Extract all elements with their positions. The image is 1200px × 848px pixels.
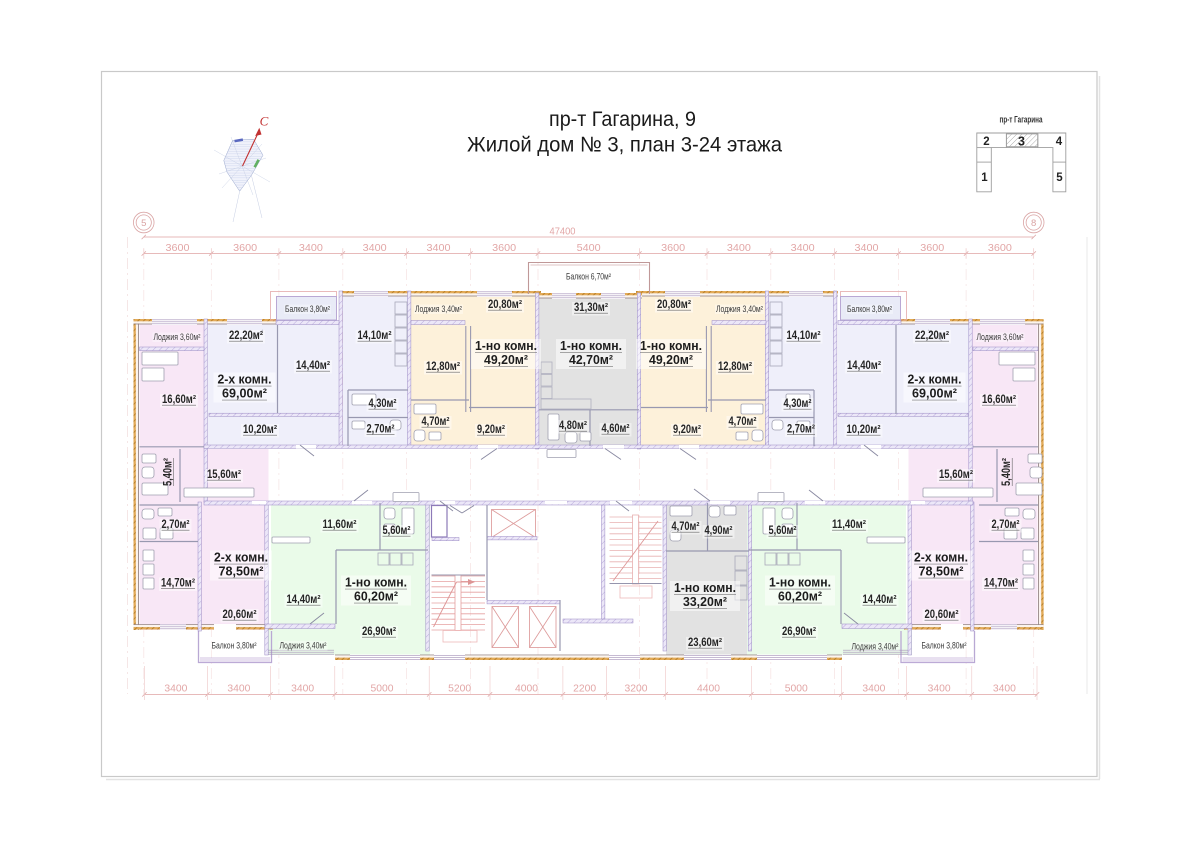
svg-text:пр-т Гагарина, 9: пр-т Гагарина, 9 [549,107,696,131]
svg-text:4,70м²: 4,70м² [729,416,757,428]
svg-text:14,70м²: 14,70м² [161,578,195,590]
svg-text:9,20м²: 9,20м² [673,424,701,436]
svg-text:5,40м²: 5,40м² [1001,458,1013,486]
svg-text:3400: 3400 [227,683,250,695]
svg-text:2200: 2200 [573,683,596,695]
svg-text:20,80м²: 20,80м² [488,299,522,311]
svg-text:4,30м²: 4,30м² [369,398,397,410]
svg-text:Балкон 3,80м²: Балкон 3,80м² [285,304,330,314]
svg-text:Балкон 6,70м²: Балкон 6,70м² [566,272,611,282]
svg-text:60,20м²: 60,20м² [354,589,399,604]
svg-text:11,40м²: 11,40м² [832,519,866,531]
svg-text:20,60м²: 20,60м² [223,609,257,621]
svg-text:9,20м²: 9,20м² [477,424,505,436]
svg-text:C: C [260,114,269,129]
svg-text:1: 1 [981,172,988,184]
svg-text:2,70м²: 2,70м² [367,424,395,436]
svg-text:69,00м²: 69,00м² [912,386,958,401]
svg-text:26,90м²: 26,90м² [782,626,816,638]
svg-text:пр-т Гагарина: пр-т Гагарина [1000,115,1043,125]
svg-text:42,70м²: 42,70м² [569,352,614,367]
svg-text:22,20м²: 22,20м² [915,330,949,342]
svg-text:14,10м²: 14,10м² [358,330,392,342]
svg-text:3400: 3400 [363,242,387,254]
svg-text:5,60м²: 5,60м² [383,525,411,537]
svg-text:10,20м²: 10,20м² [243,424,277,436]
svg-text:3600: 3600 [492,242,516,254]
svg-text:4000: 4000 [515,683,538,695]
svg-text:4: 4 [1056,136,1063,148]
svg-text:Балкон 3,80м²: Балкон 3,80м² [922,641,967,651]
svg-text:2,70м²: 2,70м² [992,519,1020,531]
svg-text:3600: 3600 [988,242,1012,254]
svg-text:78,50м²: 78,50м² [919,564,965,579]
svg-text:Лоджия 3,60м²: Лоджия 3,60м² [154,332,201,342]
svg-text:Лоджия 3,40м²: Лоджия 3,40м² [852,642,899,652]
svg-text:2-х комн.: 2-х комн. [214,550,268,565]
svg-text:14,40м²: 14,40м² [847,360,881,372]
svg-text:14,40м²: 14,40м² [863,594,897,606]
svg-text:11,60м²: 11,60м² [323,519,357,531]
svg-text:49,20м²: 49,20м² [649,352,694,367]
svg-text:3400: 3400 [791,242,815,254]
svg-text:20,80м²: 20,80м² [657,299,691,311]
svg-text:14,40м²: 14,40м² [296,360,330,372]
svg-text:3600: 3600 [166,242,190,254]
svg-text:Балкон 3,80м²: Балкон 3,80м² [212,641,257,651]
svg-text:4,80м²: 4,80м² [559,420,587,432]
svg-text:3400: 3400 [427,242,451,254]
svg-text:16,60м²: 16,60м² [982,394,1016,406]
svg-text:2-х комн.: 2-х комн. [218,372,272,387]
svg-text:3400: 3400 [928,683,951,695]
svg-text:4,70м²: 4,70м² [422,416,450,428]
svg-text:3400: 3400 [164,683,187,695]
svg-text:10,20м²: 10,20м² [847,424,881,436]
svg-text:2: 2 [983,136,989,148]
svg-text:4,60м²: 4,60м² [602,423,630,435]
svg-text:Лоджия 3,40м²: Лоджия 3,40м² [716,304,763,314]
svg-text:3400: 3400 [862,683,885,695]
svg-text:33,20м²: 33,20м² [683,594,728,609]
svg-text:3400: 3400 [299,242,323,254]
svg-text:1-но комн.: 1-но комн. [560,338,622,353]
svg-text:4400: 4400 [697,683,720,695]
svg-text:47400: 47400 [550,226,576,238]
svg-text:16,60м²: 16,60м² [162,394,196,406]
svg-text:3: 3 [1018,134,1025,148]
svg-text:3400: 3400 [855,242,879,254]
svg-text:14,70м²: 14,70м² [984,578,1018,590]
svg-text:15,60м²: 15,60м² [207,469,241,481]
svg-text:31,30м²: 31,30м² [574,302,608,314]
svg-text:5400: 5400 [577,242,601,254]
svg-text:4,90м²: 4,90м² [705,525,733,537]
svg-text:5,40м²: 5,40м² [163,458,175,486]
svg-text:5000: 5000 [371,683,394,695]
svg-text:14,40м²: 14,40м² [287,594,321,606]
svg-text:2,70м²: 2,70м² [787,424,815,436]
svg-text:49,20м²: 49,20м² [484,352,529,367]
svg-text:1-но комн.: 1-но комн. [345,575,407,590]
svg-text:5,60м²: 5,60м² [769,525,797,537]
svg-text:26,90м²: 26,90м² [362,626,396,638]
svg-text:Жилой дом № 3, план 3-24 этажа: Жилой дом № 3, план 3-24 этажа [467,133,782,157]
svg-text:12,80м²: 12,80м² [426,361,460,373]
svg-text:3400: 3400 [993,683,1016,695]
svg-text:20,60м²: 20,60м² [925,609,959,621]
svg-text:5: 5 [141,218,146,229]
svg-text:3200: 3200 [625,683,648,695]
svg-text:1-но комн.: 1-но комн. [475,338,537,353]
svg-text:1-но комн.: 1-но комн. [674,580,736,595]
svg-text:3400: 3400 [727,242,751,254]
svg-text:Лоджия 3,60м²: Лоджия 3,60м² [977,332,1024,342]
svg-text:78,50м²: 78,50м² [219,564,265,579]
svg-text:22,20м²: 22,20м² [229,330,263,342]
svg-text:Лоджия 3,40м²: Лоджия 3,40м² [280,641,327,651]
svg-text:8: 8 [1031,218,1036,229]
svg-text:23,60м²: 23,60м² [688,637,722,649]
svg-text:3600: 3600 [233,242,257,254]
svg-text:12,80м²: 12,80м² [718,361,752,373]
svg-text:3600: 3600 [920,242,944,254]
svg-text:4,70м²: 4,70м² [672,521,700,533]
svg-text:2,70м²: 2,70м² [162,519,190,531]
svg-text:2-х комн.: 2-х комн. [914,550,968,565]
svg-text:1-но комн.: 1-но комн. [769,575,831,590]
svg-text:2-х комн.: 2-х комн. [908,372,962,387]
svg-text:5: 5 [1056,172,1063,184]
svg-text:3400: 3400 [291,683,314,695]
svg-text:5000: 5000 [785,683,808,695]
svg-text:60,20м²: 60,20м² [778,589,823,604]
svg-text:69,00м²: 69,00м² [222,386,268,401]
svg-text:15,60м²: 15,60м² [939,469,973,481]
svg-text:4,30м²: 4,30м² [784,398,812,410]
svg-text:Лоджия 3,40м²: Лоджия 3,40м² [415,304,462,314]
svg-text:5200: 5200 [448,683,471,695]
svg-text:Балкон 3,80м²: Балкон 3,80м² [847,304,892,314]
svg-text:1-но комн.: 1-но комн. [640,338,702,353]
svg-text:3600: 3600 [661,242,685,254]
svg-text:14,10м²: 14,10м² [787,330,821,342]
